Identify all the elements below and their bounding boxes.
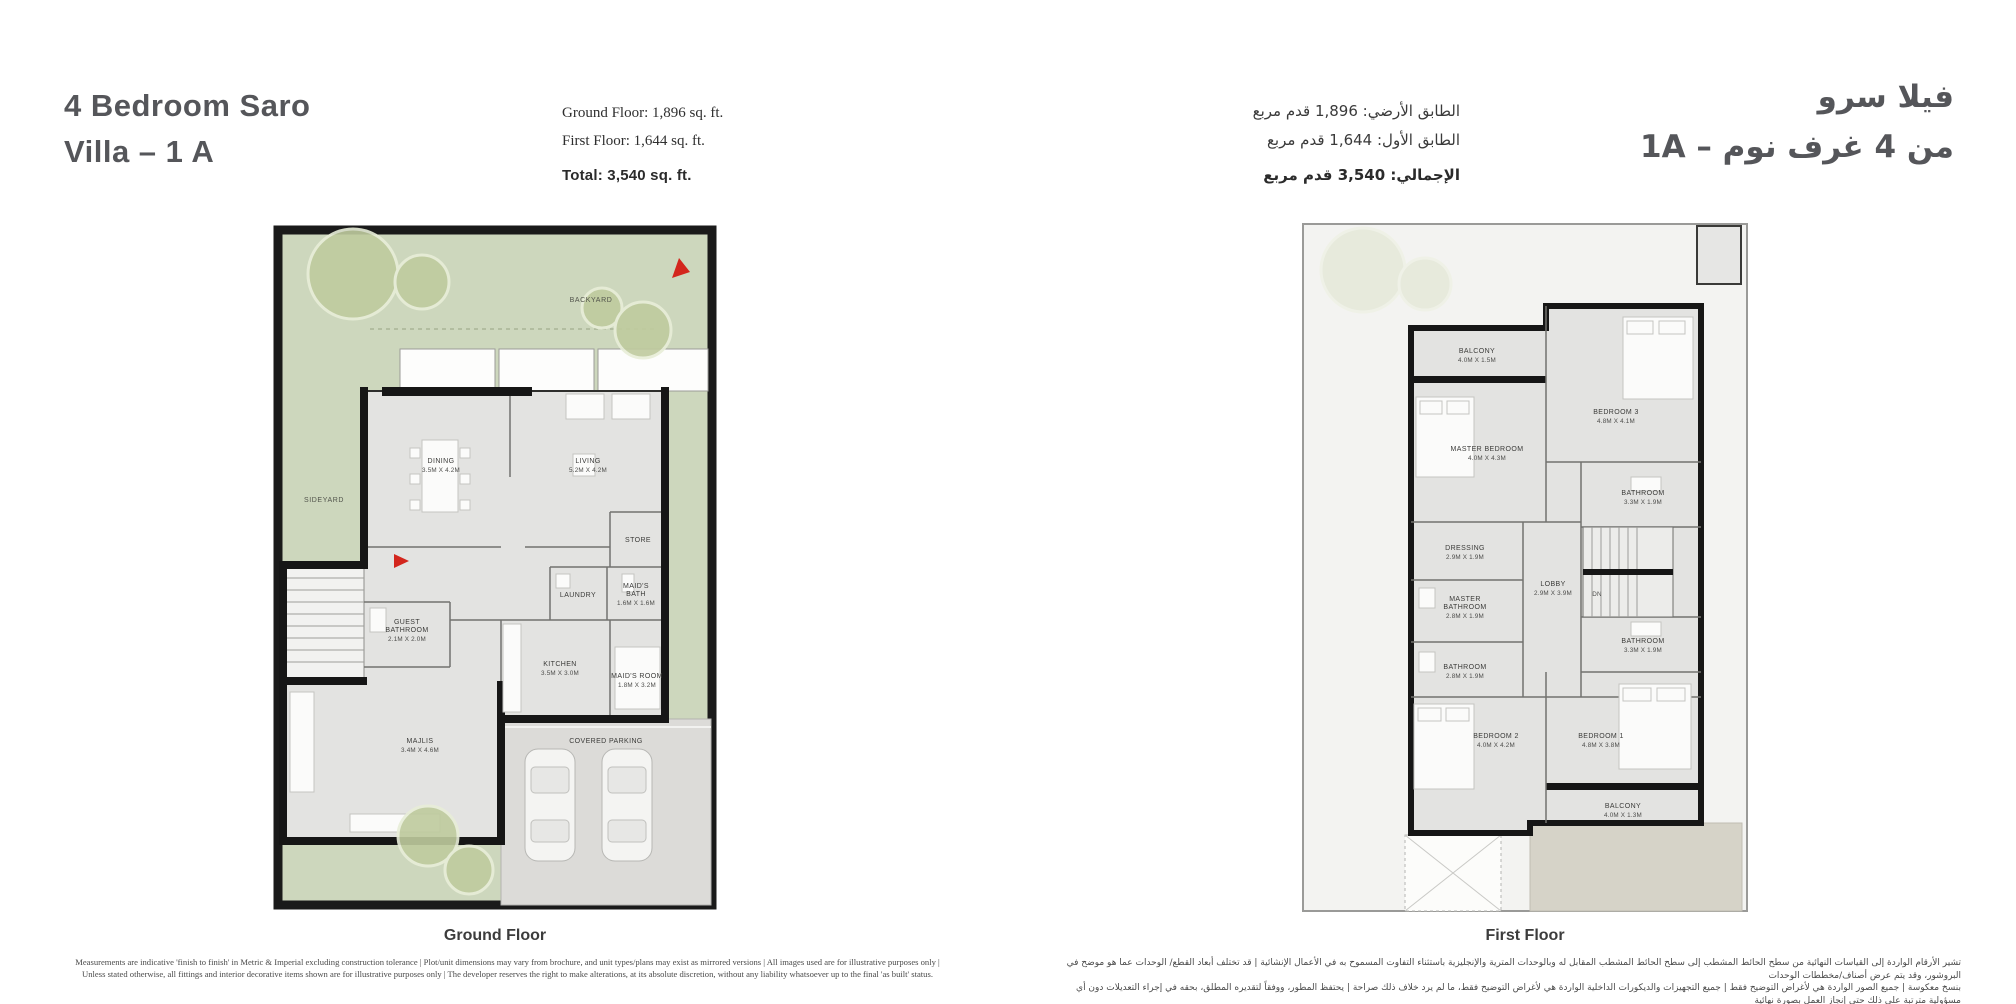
room-label-master-bathroom2: BATHROOM (1443, 604, 1486, 611)
ground-floor-caption: Ground Floor (270, 927, 720, 945)
room-dims-kitchen: 3.5M X 3.0M (541, 670, 579, 677)
room-label-bathroom-right: BATHROOM (1621, 638, 1664, 645)
terrace-patio (400, 349, 708, 391)
room-dims-bathroom-left: 2.8M X 1.9M (1446, 673, 1484, 680)
room-label-dining: DINING (428, 458, 455, 465)
stat-ground-floor-en: Ground Floor: 1,896 sq. ft. (562, 99, 723, 127)
room-dims-bedroom1: 4.8M X 3.8M (1582, 742, 1620, 749)
page-title-line2: Villa – 1 A (64, 129, 310, 175)
terrace-bottom (1530, 823, 1742, 911)
room-dims-balcony-bottom: 4.0M X 1.3M (1604, 812, 1642, 819)
page-title-line1: 4 Bedroom Saro (64, 83, 310, 129)
room-label-bedroom1: BEDROOM 1 (1578, 733, 1624, 740)
room-dims-balcony-top: 4.0M X 1.5M (1458, 357, 1496, 364)
pergola (1405, 835, 1501, 911)
room-label-guest-bathroom2: BATHROOM (385, 627, 428, 634)
room-label-bedroom3: BEDROOM 3 (1593, 409, 1639, 416)
room-dims-maids-bath: 1.6M X 1.6M (617, 600, 655, 607)
stat-first-floor-ar: الطابق الأول: 1,644 قدم مربع (1253, 126, 1460, 155)
room-dims-lobby: 2.9M X 3.9M (1534, 590, 1572, 597)
room-dims-bathroom-right: 3.3M X 1.9M (1624, 647, 1662, 654)
room-label-maids-room: MAID'S ROOM (611, 673, 663, 680)
staircase (284, 566, 364, 680)
area-stats-en: Ground Floor: 1,896 sq. ft. First Floor:… (562, 99, 723, 190)
room-label-master-bedroom: MASTER BEDROOM (1451, 446, 1524, 453)
first-floor-caption: First Floor (1301, 927, 1749, 945)
stat-first-floor-en: First Floor: 1,644 sq. ft. (562, 127, 723, 155)
disclaimer-english: Measurements are indicative 'finish to f… (55, 957, 960, 980)
stairs-dn-label: DN (1592, 591, 1602, 598)
page-title-ar-line1: فيلا سرو (1640, 72, 1954, 122)
page-title: 4 Bedroom Saro Villa – 1 A (64, 83, 310, 175)
sideyard-label: SIDEYARD (304, 497, 344, 504)
room-label-bathroom-left: BATHROOM (1443, 664, 1486, 671)
room-dims-bathroom-top: 3.3M X 1.9M (1624, 499, 1662, 506)
car-icon (602, 749, 652, 861)
staircase (1583, 527, 1673, 617)
room-label-balcony-top: BALCONY (1459, 348, 1495, 355)
room-dims-bedroom3: 4.8M X 4.1M (1597, 418, 1635, 425)
brochure-page: 4 Bedroom Saro Villa – 1 A Ground Floor:… (0, 0, 2016, 1004)
area-stats-ar: الطابق الأرضي: 1,896 قدم مربع الطابق الأ… (1253, 97, 1460, 190)
room-dims-dining: 3.5M X 4.2M (422, 467, 460, 474)
disclaimer-arabic: تشير الأرقام الواردة إلى القياسات النهائ… (1051, 957, 1961, 1004)
car-icon (525, 749, 575, 861)
room-label-bathroom-top: BATHROOM (1621, 490, 1664, 497)
page-title-arabic: فيلا سرو من 4 غرف نوم – 1A (1640, 72, 1954, 172)
room-dims-maids-room: 1.8M X 3.2M (618, 682, 656, 689)
room-label-kitchen: KITCHEN (543, 661, 577, 668)
ground-floor-plan: BACKYARD SIDEYARD DINING 3.5M X 4.2M LIV… (270, 222, 720, 913)
room-dims-dressing: 2.9M X 1.9M (1446, 554, 1484, 561)
room-label-balcony-bottom: BALCONY (1605, 803, 1641, 810)
room-label-living: LIVING (575, 458, 600, 465)
room-label-bedroom2: BEDROOM 2 (1473, 733, 1519, 740)
disclaimer-en-line2: Unless stated otherwise, all fittings an… (55, 969, 960, 981)
room-dims-majlis: 3.4M X 4.6M (401, 747, 439, 754)
room-dims-bedroom2: 4.0M X 4.2M (1477, 742, 1515, 749)
stat-ground-floor-ar: الطابق الأرضي: 1,896 قدم مربع (1253, 97, 1460, 126)
stat-total-en: Total: 3,540 sq. ft. (562, 162, 723, 190)
stat-total-ar: الإجمالي: 3,540 قدم مربع (1253, 161, 1460, 190)
first-floor-plan: BALCONY 4.0M X 1.5M BEDROOM 3 4.8M X 4.1… (1301, 222, 1749, 913)
covered-parking-area (501, 719, 711, 905)
room-dims-master-bedroom: 4.0M X 4.3M (1468, 455, 1506, 462)
room-dims-master-bathroom: 2.8M X 1.9M (1446, 613, 1484, 620)
room-label-store: STORE (625, 537, 651, 544)
room-label-maids-bath2: BATH (626, 591, 646, 598)
room-dims-guest-bathroom: 2.1M X 2.0M (388, 636, 426, 643)
page-title-ar-line2: من 4 غرف نوم – 1A (1640, 122, 1954, 172)
room-label-guest-bathroom: GUEST (394, 619, 420, 626)
disclaimer-ar-line1: تشير الأرقام الواردة إلى القياسات النهائ… (1051, 957, 1961, 982)
room-label-dressing: DRESSING (1445, 545, 1485, 552)
roof-block (1697, 226, 1741, 284)
disclaimer-en-line1: Measurements are indicative 'finish to f… (55, 957, 960, 969)
room-label-maids-bath: MAID'S (623, 583, 649, 590)
room-label-laundry: LAUNDRY (560, 592, 596, 599)
backyard-label: BACKYARD (570, 297, 613, 304)
room-dims-living: 5.2M X 4.2M (569, 467, 607, 474)
room-label-majlis: MAJLIS (407, 738, 434, 745)
room-label-master-bathroom: MASTER (1449, 596, 1481, 603)
room-label-lobby: LOBBY (1540, 581, 1565, 588)
disclaimer-ar-line2: بنسخ معكوسة | جميع الصور الواردة هي لأغر… (1051, 982, 1961, 1004)
room-label-covered-parking: COVERED PARKING (569, 738, 643, 745)
